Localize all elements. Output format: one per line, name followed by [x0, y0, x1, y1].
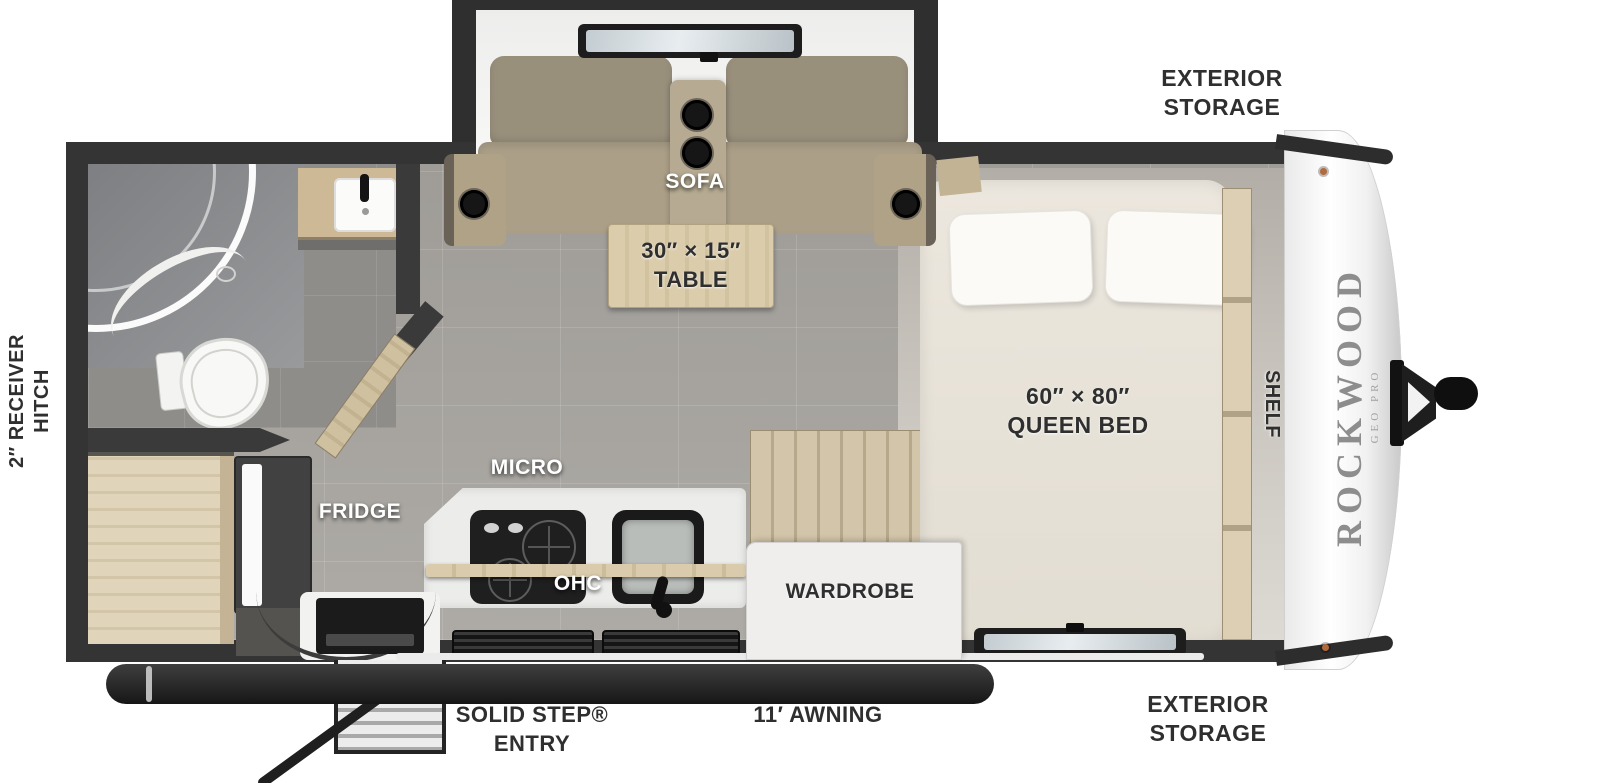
label-line: SOLID STEP®	[432, 700, 632, 729]
wood-cabinet	[88, 452, 234, 644]
window-latch-icon	[1066, 623, 1084, 632]
cupholder-icon	[682, 100, 712, 130]
bathroom-drain-icon	[362, 208, 369, 215]
cooktop-knob	[508, 523, 523, 533]
fridge	[234, 456, 312, 614]
label-exterior-storage-top: EXTERIOR STORAGE	[1112, 64, 1332, 122]
label-awning: 11′ AWNING	[718, 702, 918, 728]
slideout-wall-top	[452, 0, 938, 10]
bedroom-window-glass	[984, 634, 1176, 650]
label-line: EXTERIOR	[1112, 64, 1332, 93]
label-queen-bed: 60″ × 80″ QUEEN BED	[958, 382, 1198, 440]
bathroom-sink-cabinet	[298, 240, 404, 250]
wall-left	[66, 142, 88, 662]
label-line: STORAGE	[1098, 719, 1318, 748]
tongue-jack	[1390, 360, 1404, 446]
cupholder-icon	[460, 190, 488, 218]
cupholder-icon	[682, 138, 712, 168]
awning-end-cap	[146, 666, 152, 702]
marker-light-icon	[1322, 644, 1329, 651]
sofa-back-cushion	[490, 56, 672, 146]
label-receiver-hitch: 2″ RECEIVER HITCH	[5, 281, 55, 521]
brand-series-logo: GEO PRO	[1369, 331, 1383, 481]
cupholder-icon	[892, 190, 920, 218]
slideout-wall-left	[452, 0, 476, 164]
label-line: 2″ RECEIVER	[5, 281, 30, 521]
fridge-door	[242, 464, 262, 606]
label-micro: MICRO	[462, 456, 592, 480]
label-line: 60″ × 80″	[958, 382, 1198, 411]
kitchen-faucet-icon	[656, 602, 672, 618]
slideout-wall-right	[914, 0, 938, 164]
label-fridge: FRIDGE	[295, 500, 425, 524]
pillow	[948, 210, 1093, 307]
window-latch-icon	[700, 52, 718, 62]
label-wardrobe: WARDROBE	[760, 580, 940, 604]
label-ohc: OHC	[518, 572, 638, 596]
label-line: HITCH	[30, 281, 55, 521]
label-line: ENTRY	[432, 729, 632, 758]
slideout-window-glass	[586, 30, 794, 52]
brand-logo: ROCKWOOD	[1328, 236, 1372, 576]
bathroom-wall-right	[396, 164, 420, 314]
label-shelf: SHELF	[1257, 334, 1283, 474]
hitch-handle	[1434, 377, 1478, 410]
label-line: QUEEN BED	[958, 411, 1198, 440]
entry-step	[326, 634, 414, 646]
label-solid-step-entry: SOLID STEP® ENTRY	[432, 700, 632, 758]
wall-top-left	[66, 142, 476, 164]
storage-steps-slats	[750, 430, 938, 544]
floorplan-stage: ROCKWOOD GEO PRO EXTERIOR STORAGE SOFA 3…	[0, 0, 1600, 783]
awning-tube	[106, 664, 994, 704]
label-line: STORAGE	[1112, 93, 1332, 122]
shower-drain-icon	[216, 266, 236, 282]
shelf	[1222, 188, 1252, 646]
bathroom-faucet-icon	[360, 174, 369, 202]
corner-ledge	[936, 156, 982, 196]
cooktop-knob	[484, 523, 499, 533]
corner-shower	[88, 164, 304, 368]
bathroom-wall-bottom	[88, 428, 290, 452]
label-line: TABLE	[608, 265, 774, 294]
sofa-back-cushion	[726, 56, 908, 146]
marker-light-icon	[1320, 168, 1327, 175]
label-exterior-storage-bottom: EXTERIOR STORAGE	[1098, 690, 1318, 748]
label-line: EXTERIOR	[1098, 690, 1318, 719]
label-table: 30″ × 15″ TABLE	[608, 236, 774, 294]
label-line: 30″ × 15″	[608, 236, 774, 265]
label-sofa: SOFA	[630, 170, 760, 194]
